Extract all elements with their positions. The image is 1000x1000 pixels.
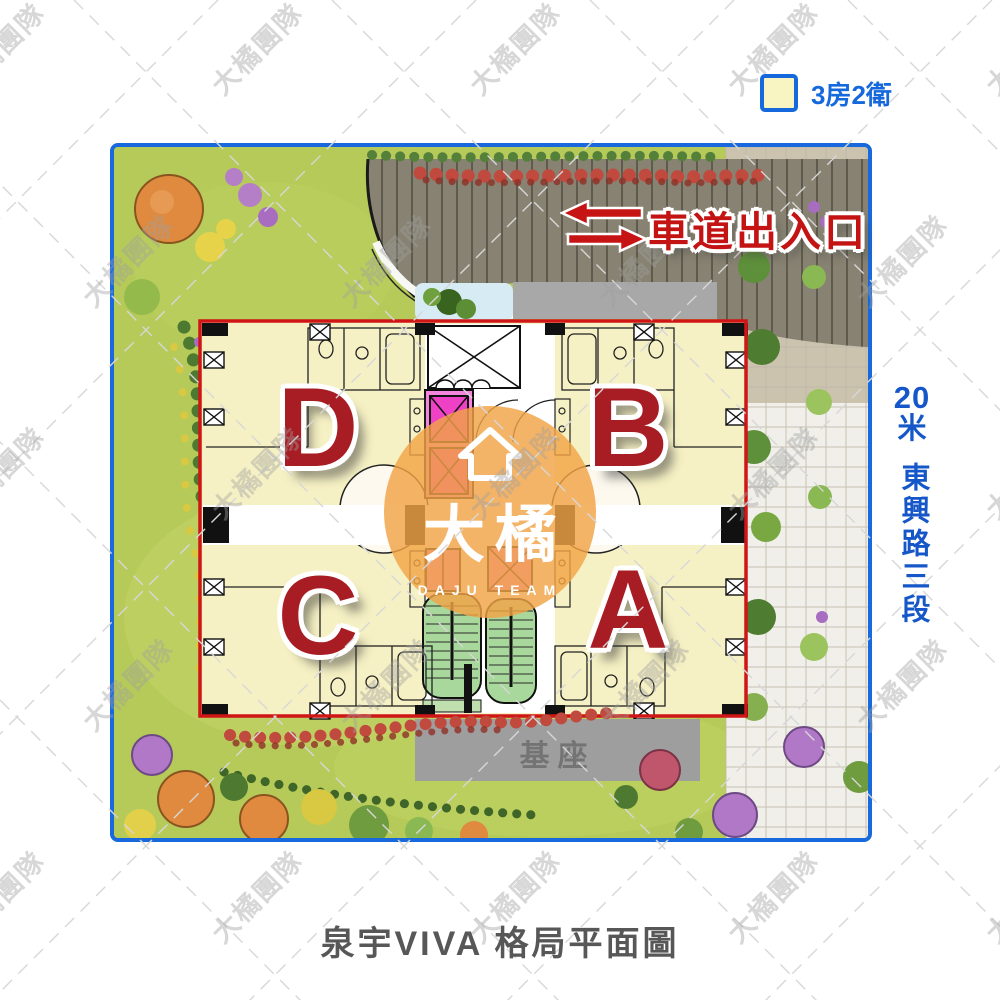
unit-label-d: D	[278, 372, 359, 484]
brand-badge: 大橘 DAJU TEAM	[384, 406, 596, 618]
legend: 3房2衛	[760, 74, 892, 112]
caption-title: 泉宇VIVA 格局平面圖	[0, 916, 1000, 965]
driveway-label: 車道出入口	[648, 198, 868, 258]
watermark-text: 大橘團隊	[975, 0, 1000, 102]
watermark-text: 大橘團隊	[975, 417, 1000, 527]
unit-type-swatch	[760, 74, 798, 112]
watermark-text: 大橘團隊	[0, 0, 53, 102]
watermark-text: 大橘團隊	[0, 417, 53, 527]
unit-label-c: C	[278, 560, 359, 672]
brand-title: 大橘	[423, 484, 567, 574]
unit-label-a: A	[588, 554, 669, 666]
watermark-text: 大橘團隊	[459, 0, 569, 102]
unit-label-b: B	[588, 372, 669, 484]
street-name: 東興路三段	[896, 462, 928, 627]
watermark-text: 大橘團隊	[201, 0, 311, 102]
house-icon	[455, 426, 525, 482]
page-background: { "legend": { "label": "3房2衛" }, "site_p…	[0, 0, 1000, 1000]
podium-label: 基座	[415, 731, 700, 775]
legend-label: 3房2衛	[811, 75, 892, 112]
street-label: 20 米 東興路三段	[887, 383, 937, 627]
street-width-number: 20	[894, 383, 930, 413]
brand-subtitle: DAJU TEAM	[418, 582, 563, 598]
street-width-unit: 米	[897, 413, 926, 446]
driveway-arrows-icon	[560, 200, 648, 254]
